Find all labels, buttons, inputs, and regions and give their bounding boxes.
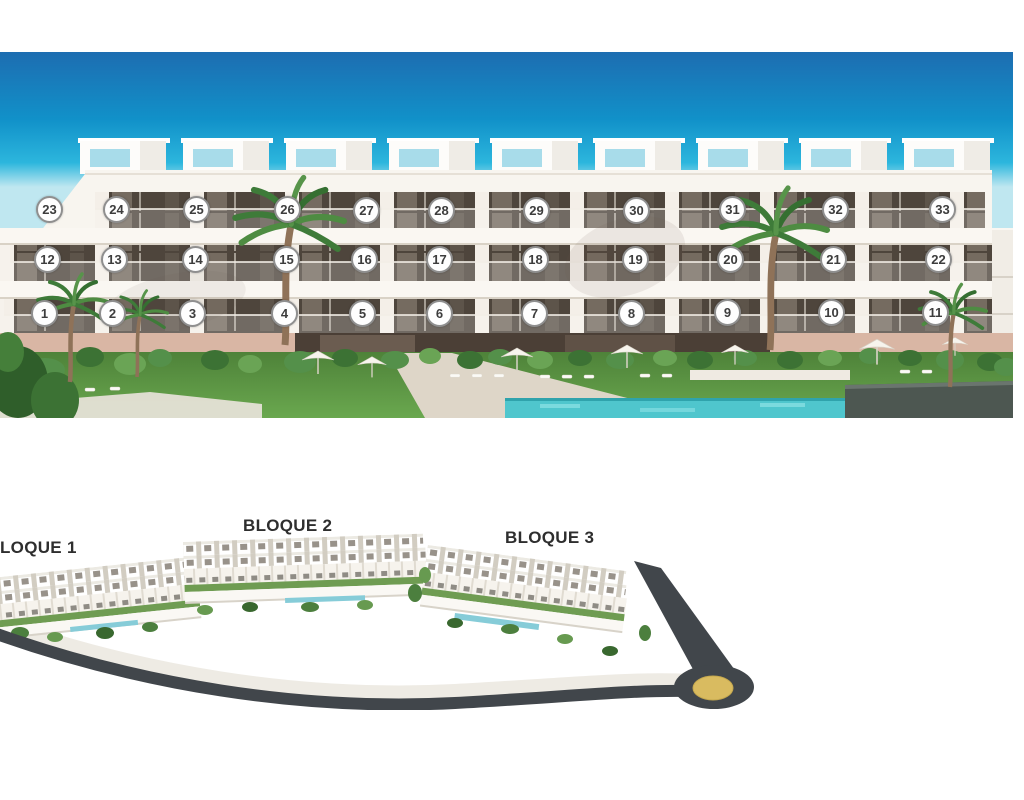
block-label: LOQUE 1 [0,538,77,558]
unit-number-badge: 17 [426,246,453,273]
unit-number-badge: 9 [714,299,741,326]
unit-number-badge: 14 [182,246,209,273]
facade-render [0,52,1013,418]
unit-number-badge: 32 [822,196,849,223]
unit-number-badge: 5 [349,300,376,327]
unit-number-badge: 8 [618,300,645,327]
roundabout [674,665,754,709]
block-label: BLOQUE 2 [243,516,332,536]
siteplan-scene-svg [0,515,760,710]
unit-number-badge: 29 [523,197,550,224]
unit-number-badge: 25 [183,196,210,223]
building-facade [0,170,1013,353]
block-2-building [183,533,429,603]
unit-number-badge: 24 [103,196,130,223]
unit-number-badge: 4 [271,300,298,327]
unit-number-badge: 13 [101,246,128,273]
unit-number-badge: 1 [31,300,58,327]
unit-number-badge: 27 [353,197,380,224]
unit-number-badge: 20 [717,246,744,273]
low-wall [690,370,850,380]
unit-number-badge: 10 [818,299,845,326]
block-label: BLOQUE 3 [505,528,594,548]
unit-number-badge: 3 [179,300,206,327]
unit-number-badge: 28 [428,197,455,224]
unit-number-badge: 6 [426,300,453,327]
page: 1234567891011121314151617181920212223242… [0,0,1024,800]
unit-number-badge: 15 [273,246,300,273]
rooftop-structures [78,138,994,174]
base-wall [0,333,1013,353]
siteplan-render [0,515,760,710]
unit-number-badge: 16 [351,246,378,273]
unit-number-badge: 2 [99,300,126,327]
unit-number-badge: 12 [34,246,61,273]
unit-number-badge: 11 [922,299,949,326]
unit-number-badge: 23 [36,196,63,223]
unit-number-badge: 26 [274,196,301,223]
unit-number-badge: 7 [521,300,548,327]
roundabout-center [693,676,733,700]
unit-number-badge: 21 [820,246,847,273]
unit-number-badge: 18 [522,246,549,273]
unit-number-badge: 31 [719,196,746,223]
unit-number-badge: 19 [622,246,649,273]
unit-number-badge: 22 [925,246,952,273]
facade-scene-svg [0,52,1013,418]
unit-number-badge: 33 [929,196,956,223]
unit-number-badge: 30 [623,197,650,224]
dark-wall [845,381,1013,418]
